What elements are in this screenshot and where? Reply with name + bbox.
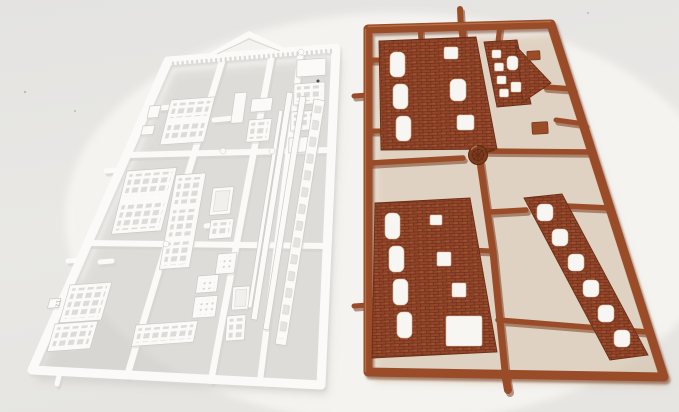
window-opening [598, 305, 614, 322]
window-opening [437, 252, 451, 266]
window-frame-part [246, 118, 274, 144]
door-opening [457, 115, 474, 130]
arched-window-opening [393, 84, 408, 109]
small-panel-part [250, 97, 275, 114]
arched-window-opening [507, 56, 518, 70]
window-opening [452, 283, 466, 297]
arched-window-opening [390, 52, 405, 77]
window-opening [511, 82, 521, 92]
window-opening [552, 229, 568, 246]
door-panel-part [209, 186, 236, 217]
window-strip-part [131, 321, 200, 349]
window-opening [500, 89, 509, 97]
window-opening [583, 280, 599, 297]
window-opening [444, 47, 458, 59]
window-opening [495, 63, 504, 71]
photo-canvas: 12 [0, 0, 679, 412]
window-frame-part [208, 218, 236, 241]
window-frame-part [225, 315, 248, 344]
arched-window-opening [393, 279, 408, 305]
arched-window-opening [450, 79, 466, 101]
arched-window-opening [396, 116, 411, 141]
product-photo: 12 [0, 0, 679, 412]
arched-window-opening [397, 312, 412, 338]
door-panel-part [231, 286, 252, 313]
lattice-window-part [195, 274, 221, 295]
brick-wall-panel-large [379, 37, 497, 150]
brick-tab-part [527, 51, 540, 61]
dark-fleck [317, 80, 320, 83]
window-opening [430, 215, 442, 225]
lattice-window-part [215, 253, 239, 277]
lintel-part [297, 58, 328, 80]
arched-window-opening [385, 213, 400, 239]
lattice-window-part [192, 295, 220, 320]
window-opening [497, 76, 506, 84]
brick-tab-part [532, 122, 549, 135]
window-opening [492, 50, 501, 58]
window-opening [568, 254, 584, 271]
arched-window-opening [389, 246, 404, 272]
window-opening [537, 204, 553, 221]
doorway-opening [446, 316, 482, 346]
window-opening [614, 330, 630, 347]
